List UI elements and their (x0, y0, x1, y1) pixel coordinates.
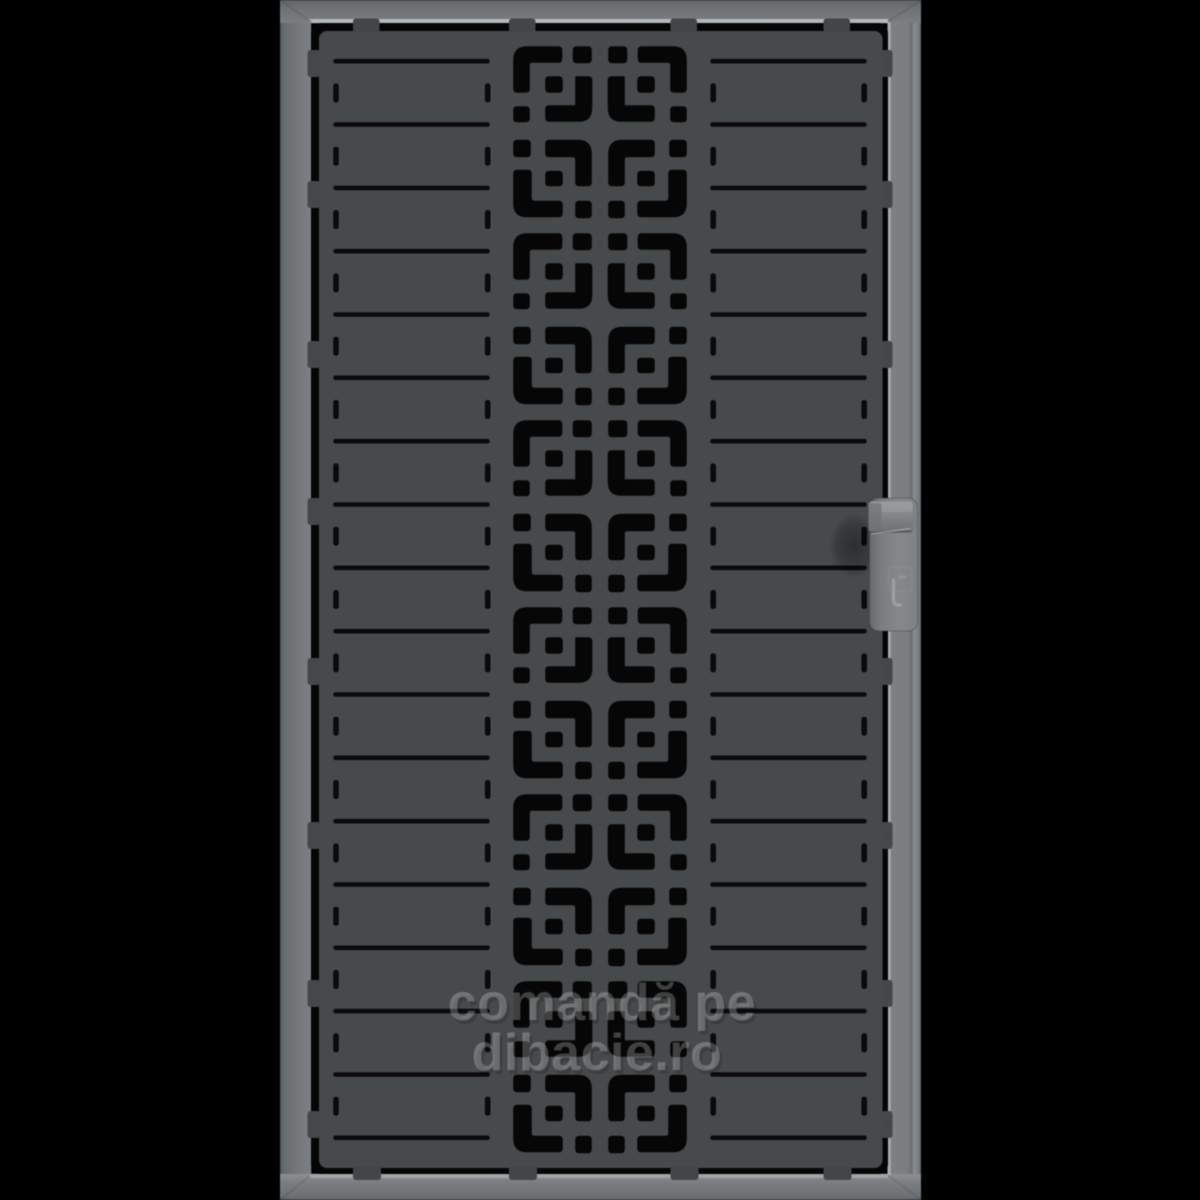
svg-text:dibacie.ro: dibacie.ro (472, 1024, 723, 1082)
